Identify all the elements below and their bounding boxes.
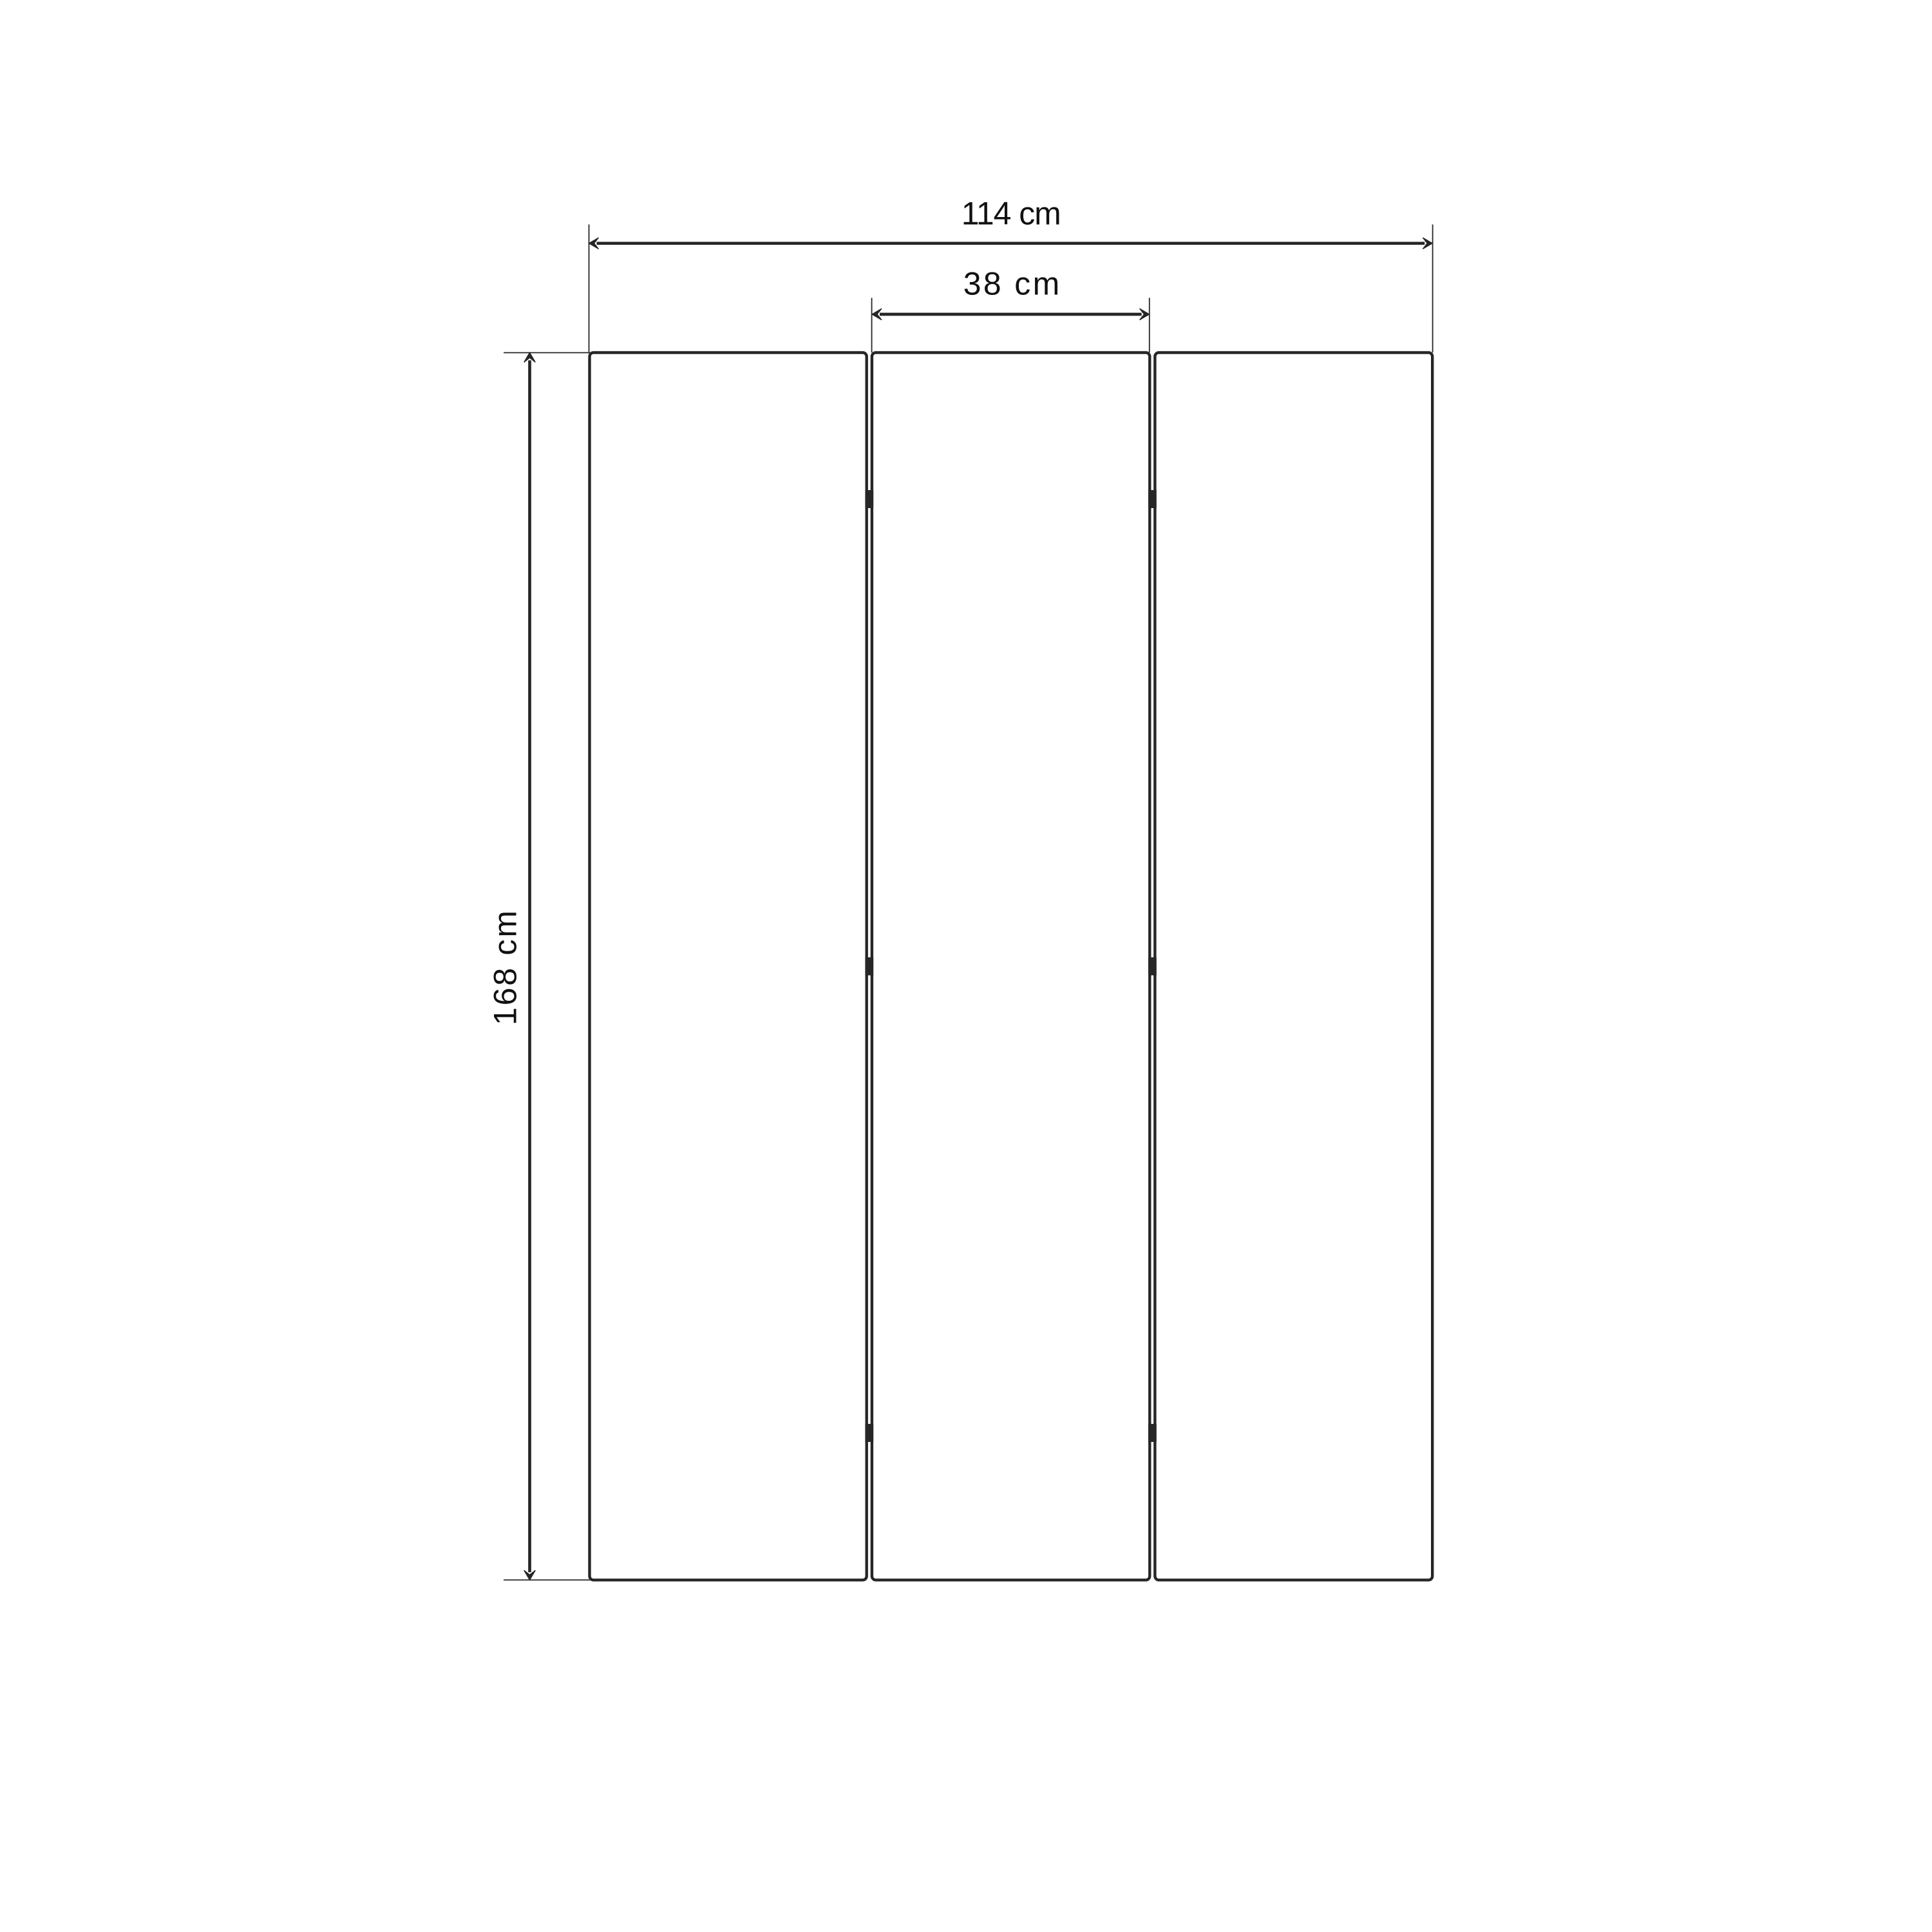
svg-text:168 cm: 168 cm <box>488 911 524 1025</box>
svg-text:114 cm: 114 cm <box>961 196 1061 232</box>
svg-text:38 cm: 38 cm <box>963 265 1060 301</box>
